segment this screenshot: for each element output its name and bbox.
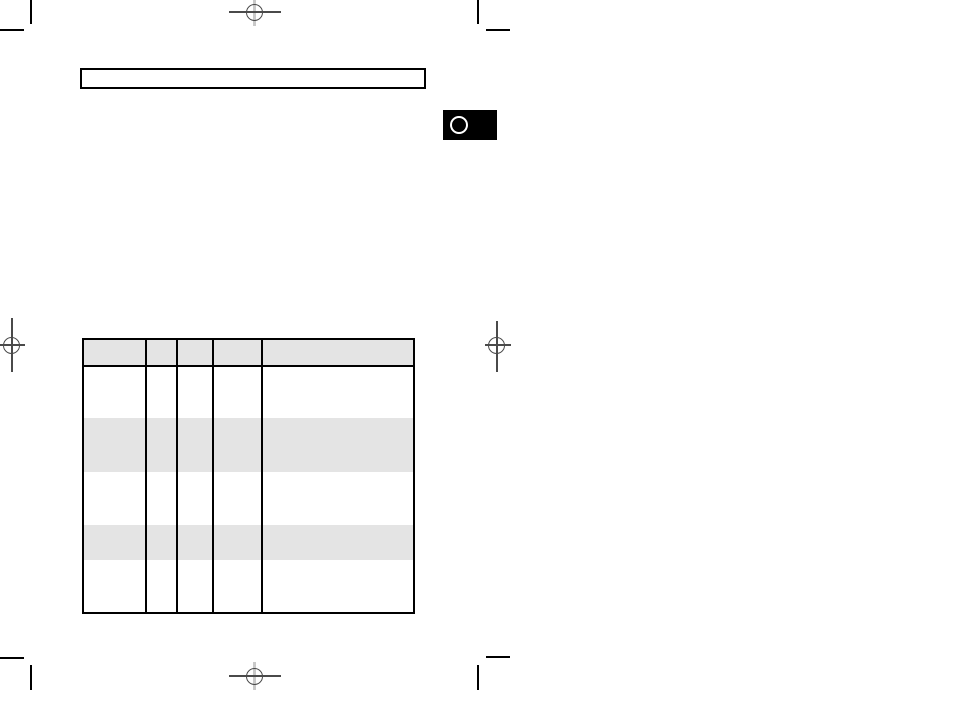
table-cell (176, 367, 212, 418)
table-header-cell (261, 340, 413, 365)
table-cell (212, 560, 261, 612)
table-cell (84, 367, 145, 418)
registration-circle-icon (246, 4, 263, 21)
table-cell (261, 525, 413, 560)
table-cell (176, 472, 212, 525)
table-row (84, 367, 413, 418)
crop-mark-top-left-horizontal-icon (0, 29, 24, 31)
table-cell (212, 418, 261, 472)
table-cell (212, 367, 261, 418)
title-box (80, 68, 426, 89)
table-header-cell (145, 340, 176, 365)
table-cell (176, 418, 212, 472)
table-cell (176, 560, 212, 612)
table-cell (261, 560, 413, 612)
table-cell (84, 525, 145, 560)
table-cell (145, 560, 176, 612)
page-tab-circle-icon (450, 116, 468, 134)
table-cell (212, 525, 261, 560)
table-cell (261, 472, 413, 525)
crop-mark-bottom-right-horizontal-icon (486, 656, 510, 658)
table-header-cell (212, 340, 261, 365)
table-row (84, 560, 413, 612)
table-header-cell (176, 340, 212, 365)
table-cell (84, 560, 145, 612)
table-cell (145, 472, 176, 525)
table-row (84, 472, 413, 525)
table-cell (176, 525, 212, 560)
table-header-cell (84, 340, 145, 365)
table-cell (261, 418, 413, 472)
registration-circle-icon (488, 337, 505, 354)
crop-mark-bottom-left-vertical-icon (30, 665, 32, 690)
table-cell (145, 525, 176, 560)
table-header-row (84, 340, 413, 367)
table-cell (261, 367, 413, 418)
crop-mark-bottom-right-vertical-icon (477, 665, 479, 690)
table-row (84, 525, 413, 560)
crop-mark-top-right-vertical-icon (477, 0, 479, 24)
table-cell (212, 472, 261, 525)
table-row (84, 418, 413, 472)
table-cell (84, 418, 145, 472)
crop-mark-top-right-horizontal-icon (486, 29, 510, 31)
table-cell (145, 367, 176, 418)
table-cell (145, 418, 176, 472)
registration-circle-icon (246, 668, 263, 685)
registration-circle-icon (3, 337, 20, 354)
crop-mark-bottom-left-horizontal-icon (0, 657, 24, 659)
data-table (82, 338, 415, 614)
crop-mark-top-left-vertical-icon (30, 0, 32, 24)
page-tab-badge (443, 110, 497, 140)
table-cell (84, 472, 145, 525)
print-proof-page (0, 0, 954, 719)
